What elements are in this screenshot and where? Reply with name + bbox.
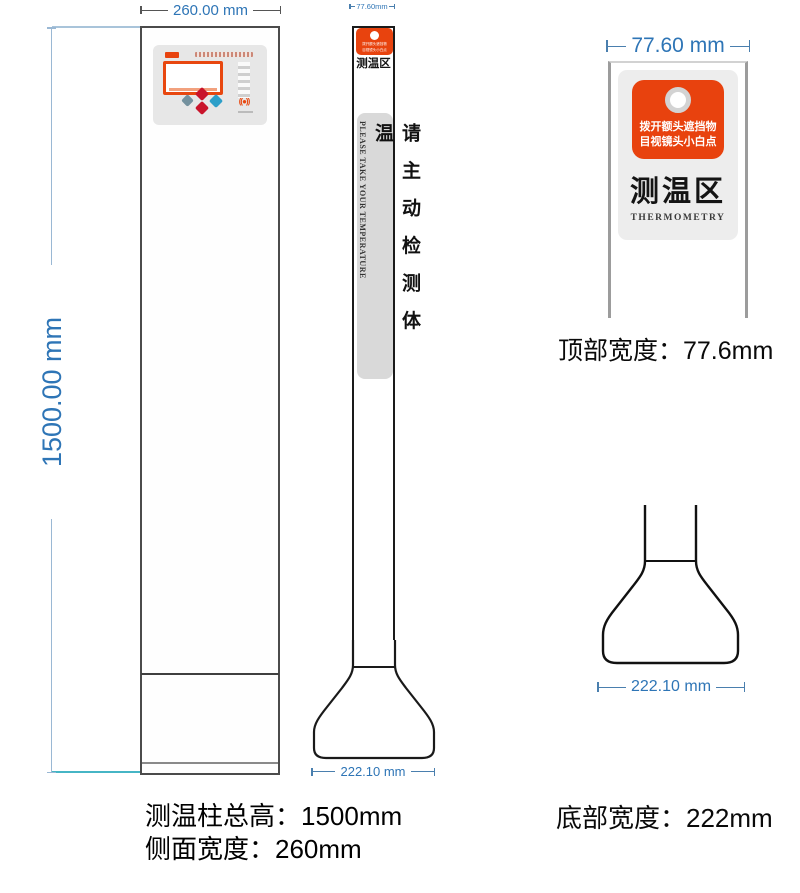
total-height-label: 测温柱总高：1500mm [145,800,402,833]
display-screen [163,61,223,95]
brand-logo-icon [165,52,179,58]
side-top-width-value: 77.60mm [355,2,388,11]
dimension-line [313,771,336,772]
height-dimension-extension-top [52,26,142,28]
base-detail-width-dimension: 222.10 mm [597,678,745,696]
panel-title-text [195,52,253,57]
dimension-tick [280,6,282,14]
spec-diagram: 260.00 mm 1500.00 mm ((●)) [0,0,800,893]
top-detail-width-dimension: 77.60 mm [606,34,750,58]
base-detail-width-value: 222.10 mm [626,678,716,696]
front-height-value: 1500.00 mm [37,265,67,519]
cabinet-seam-line [141,673,279,675]
notice-text-en: PLEASE TAKE YOUR TEMPERATURE [358,121,367,375]
right-button [209,94,223,108]
side-top-width-dimension: 77.60mm [349,2,395,11]
screen-readout [169,88,217,91]
base-detail-shape [590,505,755,685]
nfc-caption-text [238,111,253,113]
dimension-line [716,687,743,688]
dimension-tick [749,40,751,52]
footer-labels: 测温柱总高：1500mm 侧面宽度：260mm [145,800,402,866]
dimension-line [253,10,279,11]
base-width-caption: 底部宽度：222mm [556,802,773,834]
notice-strip: PLEASE TAKE YOUR TEMPERATURE 请主动检测体温 [357,113,393,379]
camera-sticker-icon: 拨开额头遮挡物 目视镜头小白点 [356,28,393,55]
dimension-line [411,771,434,772]
top-detail-width-value: 77.60 mm [626,34,729,58]
side-base-width-value: 222.10 mm [335,764,410,779]
sticker-line1: 拨开额头遮挡物 [632,121,724,134]
indicator-lights [238,62,250,98]
dimension-tick [434,768,436,776]
thermometry-panel: 拨开额头遮挡物 目视镜头小白点 测温区 THERMOMETRY [618,70,738,240]
base-seam-line [142,762,278,764]
down-button [195,101,209,115]
contactless-icon: ((●)) [232,97,256,106]
dimension-line [730,46,749,47]
sticker-line2: 目视镜头小白点 [632,136,724,149]
camera-sticker: 拨开额头遮挡物 目视镜头小白点 [632,80,724,159]
dimension-line [599,687,626,688]
dimension-tick [47,772,56,774]
control-panel: ((●)) [153,45,267,125]
side-base-width-dimension: 222.10 mm [311,764,435,779]
camera-lens-icon [665,87,691,113]
camera-lens-icon [370,31,379,40]
side-width-label: 侧面宽度：260mm [145,833,402,866]
height-dimension-extension-bottom [52,771,142,773]
zone-label-en: THERMOMETRY [618,213,738,223]
sticker-mini-line2: 目视镜头小白点 [356,48,393,53]
sticker-mini-line1: 拨开额头遮挡物 [356,42,393,47]
zone-label-cn: 测温区 [618,176,738,208]
top-width-caption: 顶部宽度：77.6mm [558,336,773,366]
dimension-line [142,10,168,11]
dimension-tick [744,682,746,692]
notice-text-cn: 请主动检测体温 [369,123,423,377]
dimension-line [608,46,627,47]
top-detail-column: 拨开额头遮挡物 目视镜头小白点 测温区 THERMOMETRY [608,61,748,318]
side-view-base-shape [300,640,450,765]
front-view-column: ((●)) [140,26,280,775]
left-button [181,94,194,107]
dimension-tick [47,27,56,29]
front-width-value: 260.00 mm [168,2,253,19]
front-width-dimension: 260.00 mm [140,2,281,18]
side-zone-label: 测温区 [352,55,395,71]
dimension-tick [394,4,396,9]
